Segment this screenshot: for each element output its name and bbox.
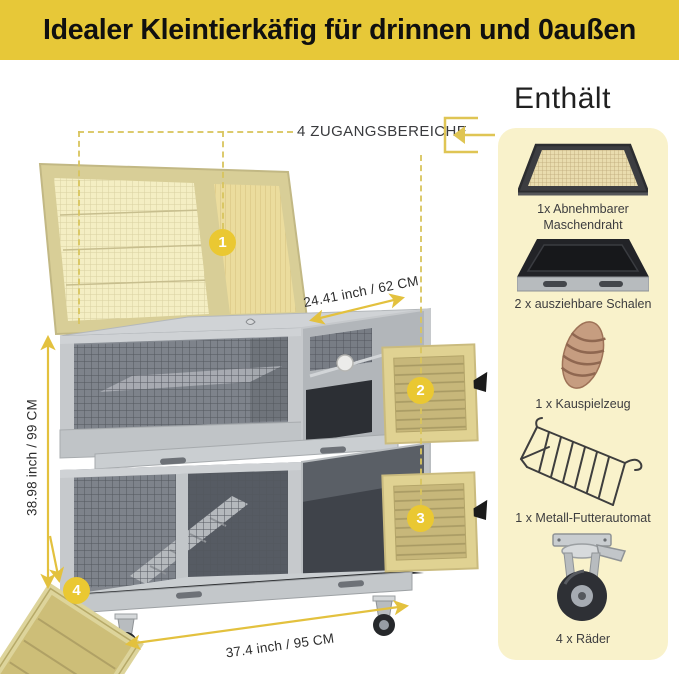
chew-toy-icon bbox=[548, 317, 618, 393]
callout-3: 3 bbox=[407, 505, 434, 532]
enter-arrow-icon bbox=[443, 116, 497, 154]
open-lid bbox=[40, 164, 308, 334]
metal-feeder-icon bbox=[519, 417, 647, 507]
guide-line-left bbox=[78, 131, 80, 324]
guide-line-doors bbox=[420, 155, 422, 505]
included-item-label: 4 x Räder bbox=[556, 632, 610, 648]
callout-2: 2 bbox=[407, 377, 434, 404]
callout-1: 1 bbox=[209, 229, 236, 256]
included-item-label: 1 x Metall-Futterautomat bbox=[515, 511, 650, 527]
guide-line-horizontal bbox=[78, 131, 293, 133]
included-item-chew-toy: 1 x Kauspielzeug bbox=[535, 317, 630, 413]
included-item-label: 2 x ausziehbare Schalen bbox=[515, 297, 652, 313]
included-item-wheels: 4 x Räder bbox=[537, 530, 629, 648]
product-area: 4 ZUGANGSBEREICHE 1 2 3 4 24.41 inch / 6… bbox=[0, 60, 490, 674]
guide-line-lid bbox=[222, 131, 224, 229]
included-item-feeder: 1 x Metall-Futterautomat bbox=[515, 417, 650, 527]
dimension-height-label: 38.98 inch / 99 CM bbox=[25, 388, 40, 528]
included-item-label: 1x Abnehmbarer Maschendraht bbox=[507, 202, 659, 233]
content: 4 ZUGANGSBEREICHE 1 2 3 4 24.41 inch / 6… bbox=[0, 60, 679, 674]
mesh-tray-icon bbox=[518, 142, 648, 198]
water-bottle bbox=[337, 355, 353, 371]
door-lower bbox=[382, 472, 489, 572]
caster-right bbox=[373, 596, 395, 636]
banner-title: Idealer Kleintierkäfig für drinnen und 0… bbox=[43, 14, 636, 47]
product-infographic-page: Idealer Kleintierkäfig für drinnen und 0… bbox=[0, 0, 679, 674]
sidebar-title: Enthält bbox=[514, 82, 611, 116]
banner: Idealer Kleintierkäfig für drinnen und 0… bbox=[0, 0, 679, 60]
slide-out-tray-icon bbox=[517, 237, 649, 293]
callout-4: 4 bbox=[63, 577, 90, 604]
caster-wheel-icon bbox=[537, 530, 629, 628]
door-upper bbox=[382, 344, 489, 444]
included-item-trays: 2 x ausziehbare Schalen bbox=[515, 237, 652, 313]
included-item-label: 1 x Kauspielzeug bbox=[535, 397, 630, 413]
included-item-mesh: 1x Abnehmbarer Maschendraht bbox=[507, 142, 659, 233]
upper-level-front bbox=[60, 328, 302, 458]
included-sidebar: Enthält 1x A bbox=[490, 60, 679, 674]
access-areas-label: 4 ZUGANGSBEREICHE bbox=[297, 123, 467, 140]
included-panel: 1x Abnehmbarer Maschendraht 2 x ausziehb… bbox=[498, 128, 668, 660]
